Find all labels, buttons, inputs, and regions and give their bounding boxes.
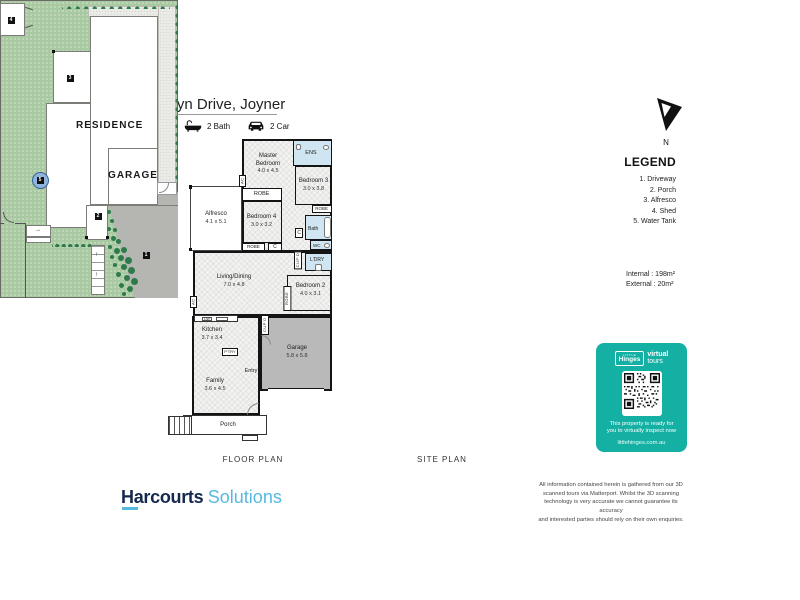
sp-side-step-arrow: →: [35, 227, 41, 233]
fp-pantry: P'TRY: [222, 348, 239, 356]
sp-bush: [113, 228, 117, 232]
legend: LEGEND 1. Driveway 2. Porch 3. Alfresco …: [576, 155, 676, 228]
fp-room-living: Living/Dining 7.0 x 4.8: [204, 274, 264, 288]
fp-room-bedroom3: Bedroom 3 3.0 x 3.8: [297, 178, 330, 192]
sp-bush: [131, 278, 138, 285]
fp-wc: WC: [310, 240, 332, 250]
sp-bush: [113, 263, 117, 267]
sp-post-alfresco: [52, 50, 55, 53]
floor-plan-caption: FLOOR PLAN: [193, 455, 313, 464]
fp-room-alfresco: Alfresco 4.1 x 5.1: [196, 211, 236, 225]
virtual-tour-badge: LITTLE Hinges virtual tours This propert…: [596, 343, 687, 452]
fp-side-steps: [168, 416, 191, 434]
north-arrow: N: [655, 95, 685, 141]
little-hinges-logo: LITTLE Hinges: [615, 351, 645, 366]
sp-bush: [110, 255, 114, 259]
sp-steps-arrow-1: ↑: [95, 252, 98, 258]
legend-item: 1. Driveway: [576, 175, 676, 186]
page: 43 Karelyn Drive, Joyner 4 Bed 2 Bath 2 …: [0, 0, 800, 600]
fp-laundry: L'DRY: [305, 253, 332, 271]
legend-item: 5. Water Tank: [576, 217, 676, 228]
feature-cars: 2 Car: [247, 120, 290, 132]
sp-front-steps: [91, 245, 105, 295]
sp-bush: [108, 245, 112, 249]
sp-bush: [125, 257, 132, 264]
feature-baths: 2 Bath: [184, 120, 230, 132]
site-plan: RESIDENCE GARAGE → ↑ ↑: [0, 0, 178, 298]
fp-alfresco-post-top: [189, 185, 193, 189]
sp-porch-area: [86, 205, 108, 240]
qr-code: [622, 371, 662, 416]
sp-steps-arrow-2: ↑: [95, 272, 98, 278]
sp-bush: [122, 292, 126, 296]
badge-logo: LITTLE Hinges virtual tours: [596, 351, 687, 366]
fp-robe-bed3: ROBE: [312, 205, 332, 213]
fp-room-bedroom2: Bedroom 2 4.0 x 3.1: [292, 283, 329, 297]
sp-bush: [107, 210, 111, 214]
fp-ens: ENS: [293, 140, 331, 167]
area-summary: Internal : 198m² External : 20m²: [626, 270, 675, 290]
fp-room-kitchen: Kitchen 3.7 x 3.4: [196, 327, 228, 341]
fp-room-master: Master Bedroom 4.0 x 4.5: [247, 153, 289, 175]
sp-gate-arc-left: [3, 212, 14, 223]
fp-bath: Bath: [305, 215, 332, 240]
fp-garage-door: [268, 388, 324, 391]
sp-side-step: [26, 237, 51, 243]
sp-marker-porch: 2: [95, 213, 102, 220]
floor-plan: Alfresco 4.1 x 5.1 Porch Master Bedroom …: [150, 135, 345, 447]
sp-bush: [110, 219, 114, 223]
feature-baths-label: 2 Bath: [207, 122, 230, 131]
fp-wc-toilet: [324, 243, 330, 248]
sp-bush: [119, 283, 124, 288]
sp-hedge-top: [62, 0, 170, 9]
sp-marker-alfresco: 3: [67, 75, 74, 82]
internal-area: Internal : 198m²: [626, 270, 675, 280]
fp-room-bedroom4: Bedroom 4 3.0 x 3.2: [243, 214, 280, 228]
sp-bush: [116, 272, 121, 277]
fp-room-family: Family 3.6 x 4.5: [200, 378, 230, 392]
fp-robe-bed2: ROBE: [283, 286, 291, 311]
sp-marker-driveway: 1: [143, 252, 150, 259]
sp-bush: [118, 255, 124, 261]
fp-cupd-garage: CUP'D: [261, 315, 269, 335]
fp-porch-label: Porch: [212, 422, 244, 430]
fp-robe-bed4: ROBE: [242, 243, 265, 251]
disclaimer: All information contained herein is gath…: [535, 481, 687, 525]
qr-code-icon: [624, 373, 660, 409]
badge-url: littlehinges.com.au: [596, 440, 687, 446]
sp-marker-water-tank: 5: [37, 177, 44, 184]
legend-item: 4. Shed: [576, 207, 676, 218]
sp-shed-gate-line1: [25, 7, 33, 10]
fp-cupboard-bath: C: [295, 228, 303, 238]
sp-bush: [127, 286, 133, 292]
fp-ac-mid: AC: [190, 296, 197, 308]
agency-logo-underline: [122, 507, 138, 510]
bath-icon: [184, 120, 202, 132]
fp-wc-label: WC: [313, 243, 321, 249]
badge-message: This property is ready for you to virtua…: [596, 421, 687, 436]
sp-post-porch-right: [106, 236, 109, 239]
fp-ens-basin: [323, 145, 329, 150]
sp-residence-label: RESIDENCE: [76, 120, 136, 131]
agency-brand: Harcourts: [121, 487, 203, 507]
sp-bush: [128, 267, 135, 274]
fp-laundry-label: L'DRY: [310, 257, 324, 263]
agency-brand-sub: Solutions: [208, 487, 282, 507]
fp-cupboard-bed4: C: [268, 243, 281, 251]
car-icon: [247, 120, 265, 132]
fp-front-step: [242, 435, 259, 441]
feature-cars-label: 2 Car: [270, 122, 290, 131]
sp-hedge-row-porch: [52, 239, 91, 247]
sp-fence-vertical: [25, 223, 26, 298]
fp-bathtub: [324, 217, 331, 238]
fp-bath-label: Bath: [308, 226, 318, 232]
fp-entry-label: Entry: [240, 368, 262, 375]
legend-item: 2. Porch: [576, 186, 676, 197]
fp-sink: [216, 317, 228, 321]
badge-product: virtual tours: [647, 351, 668, 366]
legend-item: 3. Alfresco: [576, 196, 676, 207]
sp-bush: [121, 264, 127, 270]
fp-alfresco-post-bottom: [189, 248, 193, 252]
legend-title: LEGEND: [576, 155, 676, 169]
fp-ens-toilet: [296, 144, 301, 150]
fp-kitchen-bench: DW: [194, 315, 238, 322]
sp-fence-seg2: [15, 223, 25, 224]
external-area: External : 20m²: [626, 280, 675, 290]
sp-bush: [121, 247, 127, 253]
sp-bush: [114, 248, 120, 254]
sp-hedge-right: [169, 0, 178, 200]
north-label: N: [655, 138, 677, 147]
sp-fence-seg1: [0, 223, 4, 224]
fp-dishwasher: DW: [202, 317, 212, 321]
sp-shed-gate-line2: [25, 25, 33, 28]
fp-room-garage: Garage 5.8 x 5.8: [267, 345, 327, 359]
fp-washer: [315, 264, 322, 271]
fp-cupd-laundry: CUP'D: [294, 251, 302, 269]
sp-marker-shed: 4: [8, 17, 15, 24]
fp-ac-top: AC: [239, 175, 246, 187]
sp-bush: [116, 239, 121, 244]
north-arrow-icon: [655, 95, 685, 133]
fp-ens-label: ENS: [305, 150, 316, 157]
site-plan-caption: SITE PLAN: [382, 455, 502, 464]
sp-bush: [107, 227, 111, 231]
sp-bush: [124, 275, 130, 281]
sp-garage-label: GARAGE: [108, 170, 158, 181]
fp-robe-master: ROBE: [242, 188, 282, 201]
agency-logo: Harcourts Solutions: [121, 487, 282, 508]
